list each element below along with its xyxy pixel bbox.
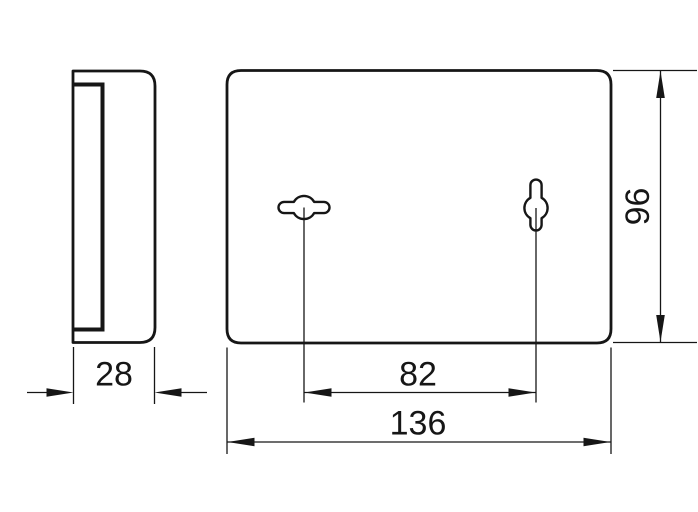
technical-drawing-canvas: 28 82 136 <box>0 0 698 512</box>
arrowhead-right-icon <box>509 388 536 397</box>
dimension-depth: 28 <box>27 347 207 404</box>
dimension-depth-label: 28 <box>95 356 133 394</box>
arrowhead-left-icon <box>228 438 255 447</box>
arrowhead-up-icon <box>656 71 665 98</box>
side-profile-view <box>73 71 155 343</box>
dimension-height-label: 96 <box>619 188 657 226</box>
arrowhead-right-icon <box>47 388 74 397</box>
arrowhead-right-icon <box>584 438 611 447</box>
drawing-svg: 28 82 136 <box>0 0 698 512</box>
dimension-keyhole-spacing-label: 82 <box>399 356 437 394</box>
side-profile-inner-edge <box>74 85 103 330</box>
side-profile-outline <box>73 71 155 343</box>
arrowhead-down-icon <box>656 315 665 342</box>
arrowhead-left-icon <box>305 388 332 397</box>
arrowhead-left-icon <box>155 388 182 397</box>
front-view <box>227 71 611 403</box>
dimension-height: 96 <box>613 71 697 343</box>
dimension-width-label: 136 <box>390 405 447 443</box>
dimension-keyhole-spacing: 82 <box>304 356 536 397</box>
